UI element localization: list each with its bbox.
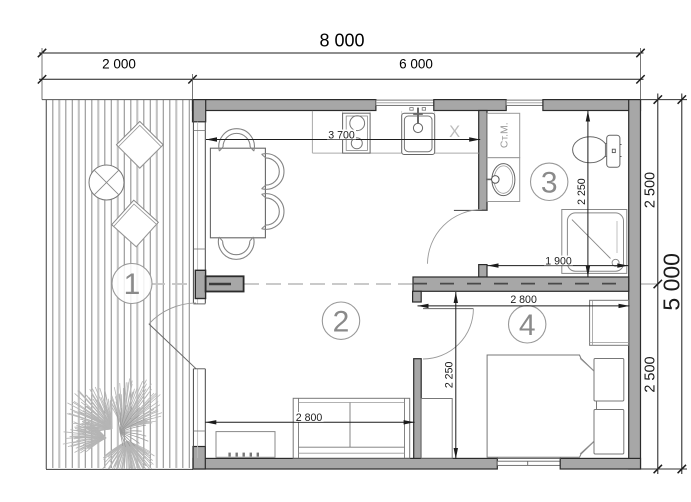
svg-text:2 250: 2 250 — [444, 362, 456, 389]
svg-text:3: 3 — [541, 167, 558, 200]
svg-text:2: 2 — [333, 305, 350, 338]
svg-text:2 250: 2 250 — [576, 178, 588, 205]
svg-text:5 000: 5 000 — [658, 253, 684, 311]
svg-text:8 000: 8 000 — [319, 31, 364, 51]
svg-text:4: 4 — [519, 309, 536, 342]
svg-text:2 800: 2 800 — [296, 412, 323, 424]
svg-text:X: X — [449, 123, 460, 141]
svg-text:2 500: 2 500 — [643, 172, 659, 208]
svg-text:2 000: 2 000 — [102, 57, 136, 72]
svg-text:1: 1 — [124, 268, 141, 301]
svg-text:Ст.М.: Ст.М. — [499, 122, 511, 148]
svg-text:3 700: 3 700 — [328, 129, 355, 141]
svg-text:2 500: 2 500 — [643, 356, 659, 392]
svg-text:1 900: 1 900 — [545, 256, 572, 268]
svg-text:6 000: 6 000 — [399, 57, 433, 72]
svg-text:2 800: 2 800 — [510, 294, 537, 306]
